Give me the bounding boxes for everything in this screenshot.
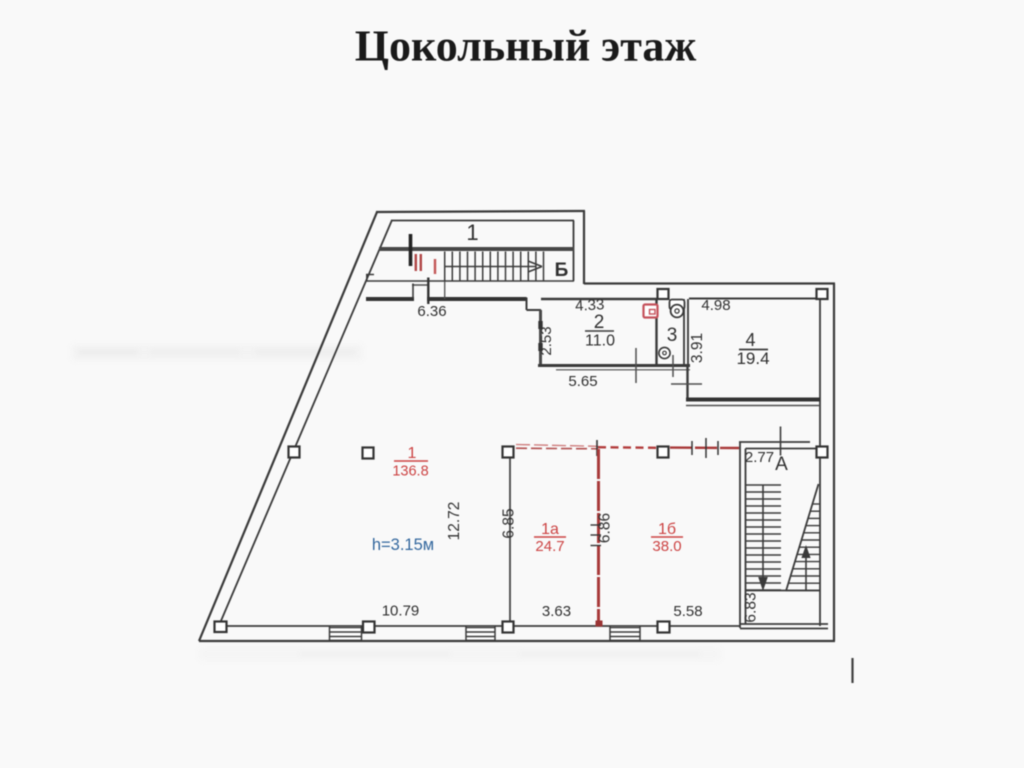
svg-text:6.86: 6.86 — [597, 513, 614, 543]
svg-text:24.7: 24.7 — [535, 538, 564, 555]
svg-text:1: 1 — [408, 445, 417, 462]
svg-text:6.83: 6.83 — [743, 592, 760, 622]
svg-text:1а: 1а — [541, 521, 559, 538]
svg-text:1б: 1б — [658, 521, 676, 538]
svg-text:1: 1 — [466, 220, 478, 245]
svg-text:Цокольный этаж: Цокольный этаж — [355, 22, 697, 71]
svg-text:19.4: 19.4 — [736, 349, 769, 368]
svg-text:4.98: 4.98 — [701, 297, 730, 314]
svg-text:5.58: 5.58 — [673, 603, 702, 620]
svg-text:h=3.15м: h=3.15м — [372, 536, 434, 554]
svg-text:3.91: 3.91 — [689, 333, 706, 363]
svg-text:10.79: 10.79 — [382, 603, 420, 620]
svg-text:A: A — [775, 454, 788, 475]
svg-text:136.8: 136.8 — [392, 464, 428, 480]
svg-text:5.65: 5.65 — [568, 373, 597, 390]
svg-text:2.53: 2.53 — [538, 326, 555, 355]
svg-text:3: 3 — [667, 325, 678, 346]
svg-text:2: 2 — [594, 312, 605, 333]
svg-text:3.63: 3.63 — [542, 603, 571, 620]
svg-text:11.0: 11.0 — [585, 333, 615, 350]
svg-text:38.0: 38.0 — [652, 538, 681, 555]
svg-text:12.72: 12.72 — [446, 502, 463, 541]
svg-text:Б: Б — [555, 260, 569, 281]
svg-text:6.36: 6.36 — [417, 303, 446, 320]
svg-text:2.77: 2.77 — [745, 449, 774, 466]
svg-text:4: 4 — [745, 330, 755, 350]
svg-text:6.85: 6.85 — [501, 508, 518, 538]
